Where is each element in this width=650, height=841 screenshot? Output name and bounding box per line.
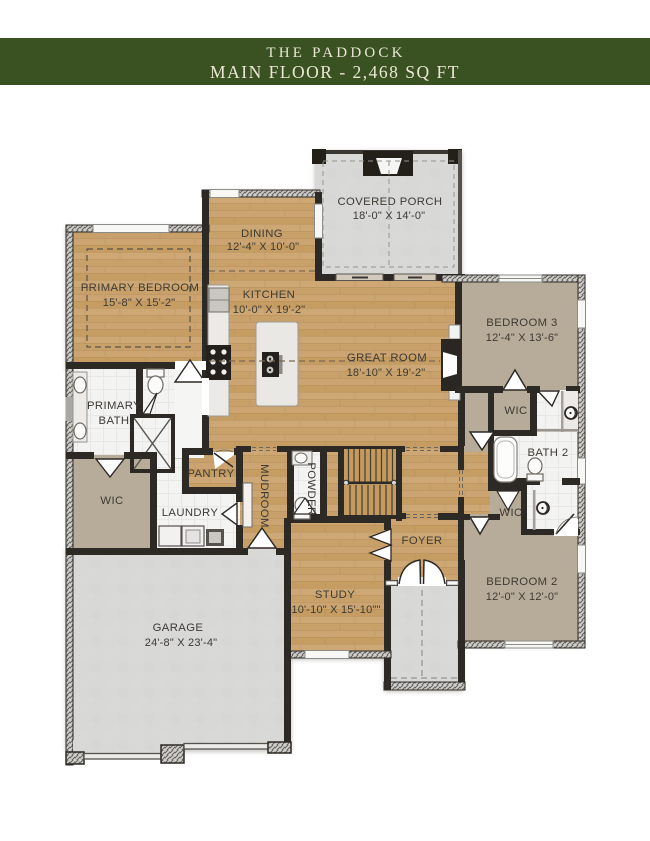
svg-text:12'-4" X 13'-6": 12'-4" X 13'-6" [486,332,559,344]
svg-text:12'-4" X 10'-0": 12'-4" X 10'-0" [227,241,300,253]
svg-text:10'-10" X 15'-10"": 10'-10" X 15'-10"" [291,604,380,616]
svg-text:10'-0" X 19'-2": 10'-0" X 19'-2" [233,304,306,316]
svg-text:12'-0" X 12'-0": 12'-0" X 12'-0" [486,591,559,603]
svg-text:THE PADDOCK: THE PADDOCK [266,45,405,61]
svg-text:LAUNDRY: LAUNDRY [162,507,219,519]
svg-text:KITCHEN: KITCHEN [243,289,295,301]
svg-text:18'-0" X 14'-0": 18'-0" X 14'-0" [353,210,426,222]
svg-text:FOYER: FOYER [402,535,443,547]
svg-text:WIC: WIC [504,405,527,417]
svg-text:POWDER: POWDER [305,462,317,515]
svg-text:DINING: DINING [241,228,283,240]
svg-text:BATH 2: BATH 2 [527,447,568,459]
svg-text:STUDY: STUDY [315,589,355,601]
svg-text:15'-8" X 15'-2": 15'-8" X 15'-2" [103,297,176,309]
svg-text:BEDROOM 2: BEDROOM 2 [486,576,557,588]
svg-text:WIC: WIC [100,495,123,507]
svg-text:18'-10" X 19'-2": 18'-10" X 19'-2" [347,367,426,379]
svg-text:COVERED PORCH: COVERED PORCH [337,196,442,208]
svg-text:PRIMARY: PRIMARY [87,400,141,412]
svg-text:BATH: BATH [99,415,130,427]
svg-text:MAIN FLOOR - 2,468 SQ FT: MAIN FLOOR - 2,468 SQ FT [210,62,460,82]
svg-text:GARAGE: GARAGE [153,622,204,634]
svg-text:GREAT ROOM: GREAT ROOM [347,352,427,364]
svg-text:PANTRY: PANTRY [187,468,234,480]
svg-text:24'-8" X 23'-4": 24'-8" X 23'-4" [145,637,218,649]
svg-text:BEDROOM 3: BEDROOM 3 [486,317,557,329]
svg-text:MUDROOM: MUDROOM [258,464,270,528]
svg-text:PRIMARY BEDROOM: PRIMARY BEDROOM [81,282,200,294]
svg-text:WIC: WIC [499,507,522,519]
